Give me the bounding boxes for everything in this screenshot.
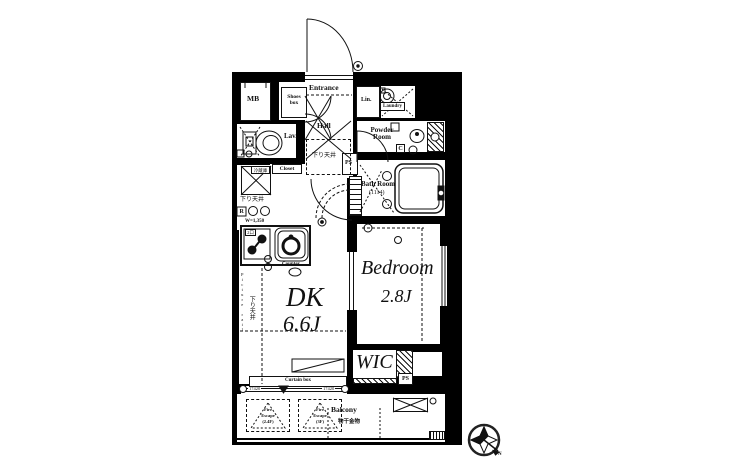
fe1-line1: Fire	[246, 408, 290, 413]
powder-basin-faucet	[416, 133, 419, 136]
stove-burner-1	[248, 246, 256, 254]
marker-circle-2	[261, 207, 270, 216]
window-end-marker-left	[240, 386, 247, 393]
marker-circle-1	[249, 207, 258, 216]
ps-lower-label: PS	[398, 373, 413, 385]
closet-label: Closet	[272, 164, 302, 174]
bath-circle-2	[383, 200, 392, 209]
floor-marker-core	[321, 221, 324, 224]
hall-label: Hall	[317, 122, 331, 130]
fridge-note-label: 冷蔵庫	[251, 166, 270, 174]
curtain-box-label: Curtain box	[249, 378, 347, 383]
laundry-label: Laundry	[380, 102, 405, 111]
stove-burner-2	[258, 235, 266, 243]
ps-upper-label: PS	[345, 160, 352, 166]
washing-machine-outer	[380, 89, 394, 103]
dk-size-label: 6.6J	[283, 312, 320, 335]
dk-label: DK	[286, 283, 324, 311]
fe1-line2: Escape	[246, 414, 290, 419]
counter-label: Counter	[282, 262, 300, 267]
entrance-door-arc	[307, 19, 353, 72]
dk-bench-diag	[292, 359, 344, 372]
doorbell-dot	[357, 65, 359, 67]
width-note-label: W=1,350	[245, 219, 264, 224]
fe2-line1: Fire	[298, 408, 342, 413]
lin-label: Lin.	[361, 97, 372, 103]
entrance-label: Entrance	[309, 84, 339, 92]
window-code-right: 17420	[322, 387, 335, 392]
dk-lowered-ceiling-label: 下り天井	[248, 296, 254, 320]
hall-dk-door-arc	[311, 179, 352, 220]
marker-c-label: C	[396, 144, 405, 153]
hall-lowered-ceiling-label: 下り天井	[312, 153, 336, 159]
bedroom-label: Bedroom	[361, 258, 434, 279]
bedroom-size-label: 2.8J	[381, 287, 412, 306]
stove-note-label: 2口	[245, 229, 256, 236]
powder-room-label: Powder Room	[363, 127, 401, 142]
toilet-bowl-inner	[263, 136, 279, 151]
floor-plan: MB Shoes box Entrance Hall Lin. Laundry …	[0, 0, 730, 470]
mb-label: MB	[247, 95, 259, 103]
wic-label: WIC	[356, 352, 393, 373]
vanity-faucet	[431, 133, 439, 141]
compass-n-label: N	[498, 452, 502, 457]
marker-r-label: R	[240, 209, 244, 215]
toilet-bowl	[256, 131, 282, 155]
window-end-marker-right	[342, 386, 349, 393]
linework-layer	[0, 0, 730, 470]
fridge-lowered-ceiling-label: 下り天井	[240, 197, 264, 203]
shoes-box-label: Shoes box	[283, 95, 305, 107]
sink-faucet	[289, 235, 293, 239]
balcony-small-circle	[430, 398, 436, 404]
lav-label: Lav.	[284, 133, 297, 140]
kitchen-sink-unit	[275, 228, 308, 261]
bath-room-label: Bath Room	[361, 181, 395, 188]
bathtub-inner	[399, 168, 439, 209]
bath-size-label: (1114)	[369, 190, 385, 196]
fe1-floor: (2.4F)	[246, 420, 290, 425]
fe2-line2: Escape	[298, 414, 342, 419]
washing-machine-inner	[384, 93, 391, 100]
picture-rail-label: Picture rail	[239, 272, 244, 332]
fe2-floor: (3F)	[298, 420, 342, 425]
closet-folding-arc-1	[316, 184, 350, 218]
bathtub-outer	[395, 164, 443, 213]
kitchen-stool	[289, 268, 301, 276]
bath-mixer-knob	[439, 191, 443, 195]
sink-basin	[283, 238, 299, 254]
bedroom-hook	[395, 237, 402, 244]
window-code-left: 17420	[248, 387, 261, 392]
powder-circle-marker	[409, 146, 417, 154]
